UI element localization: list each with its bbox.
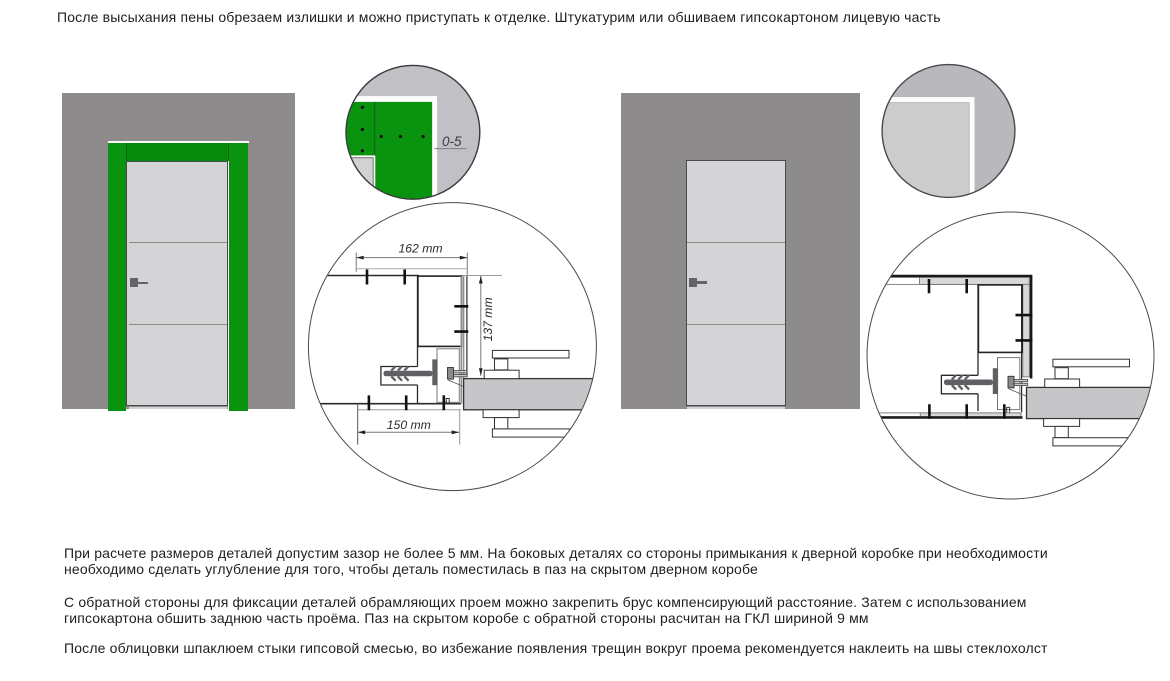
svg-text:137 mm: 137 mm (481, 297, 495, 341)
svg-text:0-5: 0-5 (442, 134, 462, 149)
svg-text:150 mm: 150 mm (387, 418, 431, 432)
svg-text:162 mm: 162 mm (398, 242, 442, 256)
